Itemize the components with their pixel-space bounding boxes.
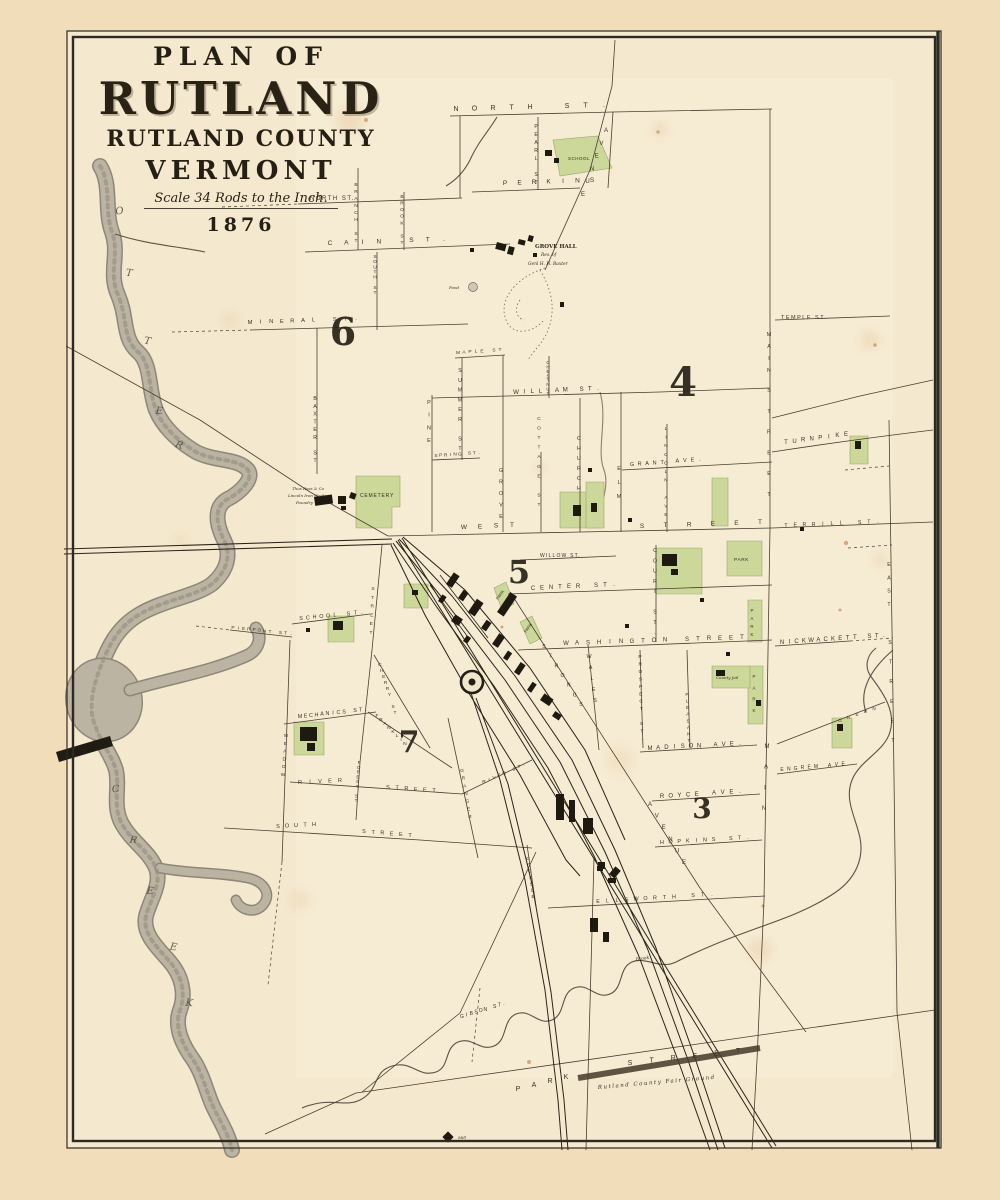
street-label-pierpont-st-char: I (238, 626, 239, 632)
street-label-meadow-char: E (284, 741, 287, 747)
street-label-street-char: E (692, 1053, 697, 1060)
street-label-mechanics-st-char: . (365, 707, 367, 713)
street-label-park-char: A (532, 1082, 537, 1089)
street-label-perkins-char: I (562, 178, 564, 185)
street-label-ellsworth-st-char: R (653, 896, 657, 902)
district-number-6: 6 (330, 309, 356, 354)
street-label-maple-st-char: M (456, 350, 460, 356)
street-label-nickwackett-st-char: C (824, 637, 829, 643)
street-label-brook-st-char: S (400, 233, 403, 239)
street-label-avenue-char: V (655, 814, 659, 820)
street-label-street-char: R (767, 430, 771, 436)
place-label-pond: Pond (448, 285, 460, 290)
street-label-court-st-char: C (653, 548, 657, 554)
street-label-mechanics-st-char: S (353, 708, 357, 714)
street-label-street-char: S (362, 829, 366, 835)
street-label-prospect-st-char: P (639, 684, 642, 690)
street-label-river-st-char: I (488, 777, 489, 783)
street-label-lincoln-ave-char: N (664, 478, 668, 484)
street-label-hopkins-st-char: S (729, 836, 733, 842)
street-label-elm-char: E (617, 466, 621, 472)
district-number-7: 7 (399, 725, 420, 760)
street-label-cherry-st-char: E (382, 674, 385, 680)
street-label-meadow-char: D (282, 756, 286, 762)
street-label-gibson-st-char: I (466, 1013, 467, 1019)
street-label-south-char: S (276, 824, 280, 830)
street-label-washington-street-char: E (718, 636, 722, 642)
street-label-street-char: E (711, 521, 716, 528)
street-label-willow-st: WILLOW ST. (540, 553, 581, 559)
street-label-turnpike-char: N (810, 437, 814, 443)
street-label-hopkins-st-char: I (696, 838, 698, 844)
place-label-county-jail: County Jail (716, 675, 739, 680)
street-label-street-char: E (767, 450, 771, 456)
street-label-north-st-char: T (509, 105, 514, 112)
street-label-pleasant-char: E (686, 705, 689, 711)
street-label-madison-ave-char: E (730, 741, 734, 747)
street-label-pierpont-st-char: E (242, 626, 245, 632)
street-label-pleasant-char: P (685, 692, 688, 698)
street-label-street-char: T (664, 522, 668, 529)
street-label-prospect-st-char: R (638, 661, 642, 667)
street-label-pierpont-st-char: O (257, 628, 261, 634)
street-label-gibson-st-char: T (498, 1002, 501, 1008)
street-label-baxter-st-char: R (313, 435, 317, 441)
street-label-center-st-char: C (531, 586, 536, 592)
street-label-nickwackett-st-char: N (780, 640, 784, 646)
street-label-nickwackett-st-char: A (816, 638, 820, 644)
street-label-gibson-st-char: O (479, 1008, 483, 1014)
street-label-branch-st-char: H (354, 217, 358, 223)
street-label-spring-st-char: . (478, 451, 479, 456)
street-label-nickwackett-st-char: W (808, 638, 814, 644)
street-label-mineral-st-char: A (301, 318, 305, 324)
street-label-temple-st: TEMPLE ST. (781, 315, 827, 321)
street-label-grove-char: E (499, 514, 503, 520)
street-label-church-char: R (577, 466, 581, 472)
street-label-wales-char: L (591, 676, 594, 682)
street-label-washington-street-char: N (619, 639, 623, 645)
street-label-spring-st-char: T (473, 450, 476, 456)
street-label-mechanics-st-char: C (309, 713, 313, 719)
street-label-cain-st-char: C (328, 240, 333, 247)
street-label-grove-char: R (499, 480, 503, 486)
street-label-lincoln-ave-char: L (665, 426, 668, 432)
place-label-genl-h-h-baxter: Genl H. H. Baxter (528, 262, 569, 267)
otter-creek-letter: O (115, 206, 125, 218)
street-label-court-st-char: U (653, 569, 657, 575)
street-label-washington-street-char: H (597, 640, 601, 646)
place-label-mill: Mill (457, 1135, 467, 1140)
street-label-park-char: K (564, 1074, 569, 1081)
street-label-turnpike-char: T (784, 440, 788, 446)
street-label-washington-street-char: T (641, 638, 645, 644)
street-label-royce-ave-char: O (668, 793, 673, 799)
place-label-foundry: Foundry (295, 500, 314, 505)
street-label-wales-char: E (592, 687, 596, 693)
street-label-terrill-st-char: R (812, 522, 816, 528)
street-label-center-st-char: E (540, 586, 544, 592)
street-label-center-st-char: R (576, 584, 581, 590)
street-label-grant-ave-char: V (683, 458, 687, 464)
street-label-park-char: K (751, 632, 754, 637)
street-label-royce-ave-char: C (686, 792, 691, 798)
street-label-south-st-char: S (373, 285, 376, 291)
street-label-cottage-st-char: S (537, 492, 540, 498)
street-label-nickwackett-st-char: K (831, 637, 835, 643)
street-label-terrill-st-char: E (793, 523, 797, 529)
street-label-ellsworth-st-char: L (616, 898, 619, 904)
street-label-madison-ave-char: A (713, 742, 717, 748)
street-label-turnpike-char: K (835, 433, 839, 439)
street-label-south-st-char: T (374, 269, 377, 275)
street-label-lincoln-ave-char: E (664, 512, 667, 518)
street-label-perkins-char: S (590, 177, 595, 184)
street-label-terrill-st-char: R (803, 522, 807, 528)
street-label-park-char: R (750, 624, 753, 629)
street-label-cherry-st-char: R (386, 686, 390, 692)
street-label-green-char: G (838, 718, 842, 723)
place-label-school: SCHOOL (568, 156, 590, 161)
street-label-north-st-char: S (565, 103, 570, 110)
street-label-street-char: S (640, 523, 645, 530)
street-label-north-st-char: T (583, 103, 588, 110)
street-label-brook-st-char: B (400, 194, 403, 200)
street-label-center-st-char: E (567, 584, 571, 590)
street-label-terrill-st-char: I (822, 521, 823, 527)
street-label-meadow-char: W (281, 772, 286, 778)
place-label-cemetery: CEMETERY (360, 493, 394, 499)
street-label-perkins-char: E (517, 180, 522, 187)
street-label-nickwackett-st-char: T (853, 635, 857, 641)
street-label-grant-ave-char: A (675, 459, 679, 465)
street-label-south-st-char: S (373, 254, 376, 260)
street-label-engrem-ave-char: G (794, 766, 798, 772)
street-label-william-st-char: W (513, 389, 519, 396)
street-label-brook-st-char: O (400, 214, 404, 220)
street-label-pleasant-char: S (687, 718, 690, 724)
street-label-prospect-st-char: . (641, 737, 642, 742)
roundhouse (461, 671, 483, 693)
street-label-branch-st-char: C (354, 210, 358, 216)
street-label-green-char: E (864, 709, 867, 714)
street-label-river-st-char: R (502, 771, 506, 777)
street-label-pearl-st-char: L (535, 156, 538, 162)
street-label-royce-ave-char: R (660, 794, 665, 800)
street-label-court-st-char: O (653, 558, 657, 564)
street-label-church-char: H (577, 446, 581, 452)
street-label-south-char: U (294, 823, 298, 829)
street-label-street-char: E (370, 621, 373, 627)
street-label-branch-st-char: S (354, 231, 357, 237)
street-label-maple-st-char: P (468, 349, 471, 355)
street-label-center-st-char: N (549, 585, 553, 591)
street-label-grant-ave-char: N (653, 460, 657, 466)
street-label-park-char: R (547, 1078, 552, 1085)
street-label-forest-st-char: T (356, 784, 359, 789)
street-label-meadow-char: M (284, 733, 288, 739)
street-label-cottage-st-char: O (537, 426, 541, 432)
street-label-mineral-st-char: R (290, 318, 294, 324)
street-label-green-char: E (855, 712, 858, 717)
street-label-school-st-char: O (319, 614, 323, 620)
street-label-avenue-char: A (648, 802, 652, 808)
street-label-cain-st-char: . (443, 236, 445, 243)
street-label-strongs-char: G (573, 692, 577, 698)
street-label-spring-st-char: P (439, 453, 442, 459)
street-label-ellsworth-st-char: S (691, 893, 695, 899)
street-label-perkins-char: N (575, 178, 580, 185)
street-label-mechanics-st-char: N (326, 711, 330, 717)
street-label-lincoln-ave-char: O (664, 460, 668, 466)
street-label-nickwackett-st-char: C (794, 639, 799, 645)
street-label-south-st-char: O (373, 259, 377, 265)
street-label-granger-char: N (464, 791, 468, 797)
street-label-grant-ave-char: G (630, 462, 634, 468)
street-label-pierpont-st-char: . (290, 632, 291, 637)
street-label-prospect-st-char: S (640, 721, 643, 727)
street-label-park-char: P (751, 608, 754, 613)
street-label-pearl-st-char: R (534, 148, 538, 154)
street-label-washington-street-char: S (586, 640, 590, 646)
street-label-pierpont-st-char: T (284, 630, 287, 636)
street-label-park-char: P (753, 674, 756, 679)
street-label-street-char: T (371, 595, 374, 601)
street-label-street-char: R (380, 831, 384, 837)
courthouse-building (662, 554, 677, 566)
street-label-east-char: A (887, 575, 891, 581)
street-label-madison-ave-char: O (689, 744, 694, 750)
street-label-cain-st-char: N (377, 238, 382, 245)
street-label-gibson-st-char: N (484, 1007, 488, 1013)
street-label-school-st-char: S (347, 611, 351, 617)
street-label-summer-st-char: E (458, 407, 462, 413)
street-label-avenue-char: E (662, 825, 666, 831)
street-label-nickwackett-st-char: T (846, 636, 850, 642)
street-label-pleasant-char: N (687, 731, 691, 737)
street-label-east-char: S (887, 589, 891, 595)
street-label-branch-st-char: B (354, 182, 357, 188)
street-label-pine-char: P (427, 400, 431, 406)
street-label-grove-char: O (499, 491, 503, 497)
street-label-maple-st-char: E (480, 348, 483, 354)
street-label-church-char: C (577, 476, 581, 482)
street-label-forest-st-char: T (355, 798, 358, 803)
street-label-park-char: P (516, 1086, 521, 1093)
street-label-elm-char: M (617, 494, 622, 500)
street-label-street-char: R (671, 1055, 676, 1062)
street-label-avenue-char: N (590, 166, 594, 172)
street-label-royce-ave-char: V (721, 790, 725, 796)
street-label-washington-street-char: O (652, 638, 657, 644)
street-label-street-char: S (371, 586, 374, 592)
street-label-william-st-char: I (523, 389, 525, 396)
street-label-south-st-char: H (373, 275, 377, 281)
street-label-prospect-st-char: C (639, 699, 643, 705)
street-label-north-st: NORTH ST. (310, 196, 355, 202)
street-label-ellsworth-st-char: L (606, 898, 609, 904)
district-number-5: 5 (508, 553, 530, 591)
street-label-strongs-char: N (567, 683, 571, 689)
street-label-granger-char: G (465, 799, 469, 805)
place-label-res-of: Res. of (540, 253, 558, 258)
street-label-william-st-char: T (588, 385, 592, 392)
street-label-granger-char: R (468, 814, 472, 820)
street-label-brook-st-char: T (401, 240, 404, 246)
street-label-street-char: E (399, 832, 403, 838)
street-label-street-char: E (767, 471, 771, 477)
street-label-church-char: H (577, 486, 581, 492)
street-label-north-st-char: O (472, 106, 478, 113)
street-label-maple-st-char: T (499, 347, 502, 353)
street-label-main-char: A (767, 344, 771, 350)
street-label-street-char: E (891, 718, 895, 724)
street-label-strongs-char: O (560, 673, 564, 679)
street-label-pierpont-st-char: P (252, 627, 255, 633)
street-label-avenue-char: E (595, 154, 599, 160)
street-label-west-char: S (494, 523, 499, 530)
street-label-river-st-char: R (482, 779, 486, 785)
street-label-prospect-st-char: O (638, 669, 642, 675)
street-label-spring-st-char: N (453, 452, 457, 458)
street-label-north-st-char: N (453, 106, 458, 113)
place-label-grove-hall: GROVE HALL (535, 244, 577, 250)
street-label-cherry-st-char: R (384, 680, 388, 686)
street-label-lincoln-ave-char: C (664, 452, 668, 458)
street-label-pierpont-st-char: P (231, 625, 234, 631)
antique-map-page: PLAN OF RUTLAND RUTLAND COUNTY VERMONT S… (0, 0, 1000, 1200)
street-label-west-char: W (461, 524, 468, 531)
street-label-terrill-st-char: S (858, 520, 862, 526)
street-label-william-st-char: M (563, 387, 568, 394)
street-label-school-st-char: C (306, 615, 310, 621)
street-label-court-st-char: . (654, 630, 655, 636)
street-label-engrem-ave-char: R (801, 765, 805, 771)
otter-creek-letter: K (184, 998, 194, 1010)
street-label-north-st-char: R (490, 105, 495, 112)
street-label-washington-street-char: T (740, 635, 744, 641)
street-label-hopkins-st-char: K (686, 839, 690, 845)
street-label-west-char: T (510, 522, 514, 529)
street-label-street-char: E (734, 520, 739, 527)
street-label-summer-st-char: U (458, 378, 462, 384)
street-label-engrem-ave-char: . (849, 761, 850, 767)
street-label-pierpont-st-char: S (279, 630, 282, 636)
street-label-strongs-char: R (554, 663, 558, 669)
street-label-prospect-st-char: T (640, 729, 643, 735)
street-label-summer-st-char: S (458, 368, 462, 374)
street-label-pierpont-st-char: T (268, 629, 271, 635)
street-label-nickwackett-st-char: E (838, 636, 842, 642)
street-label-main-char: A (764, 765, 768, 771)
street-label-ellsworth-st-char: . (711, 892, 713, 898)
street-label-river-char: V (318, 779, 322, 785)
street-label-meadow-char: O (282, 764, 286, 770)
street-label-crossle-char: L (531, 888, 534, 893)
street-label-wales-char: A (589, 665, 593, 671)
street-label-park-char: R (752, 697, 755, 702)
street-label-cherry-st-char: T (394, 710, 397, 716)
district-number-4: 4 (669, 359, 697, 406)
street-label-maple-st-char: S (492, 347, 495, 353)
street-label-gibson-st-char: . (503, 1001, 504, 1007)
street-label-river-char: E (328, 779, 332, 785)
street-label-gibson-st-char: G (460, 1014, 464, 1020)
street-label-school-st-char: O (326, 613, 330, 619)
street-label-washington-street-char: R (707, 636, 712, 642)
street-label-madison-ave-char: S (681, 744, 685, 750)
street-label-avenue-char: A (604, 128, 608, 134)
street-label-terrill-st-char: . (877, 519, 878, 525)
street-label-william-st-char: L (539, 388, 543, 395)
street-label-center-st-char: S (594, 583, 598, 589)
map-canvas: NORTHST.NORTH ST.PEARLSTPERKINSAVENUEBRA… (0, 0, 1000, 1200)
street-label-hopkins-st-char: S (712, 837, 716, 843)
street-label-william-st-char: S (580, 386, 584, 393)
street-label-spring-st-char: I (450, 452, 451, 458)
street-label-mechanics-st-char: H (315, 712, 319, 718)
street-label-royce-ave-char: A (712, 791, 716, 797)
street-label-pierpont-st-char: R (247, 627, 251, 633)
street-label-spring-st-char: S (434, 453, 437, 459)
place-label-lincoln-iron-works: Lincoln Iron Works (287, 493, 327, 498)
street-label-street-char: E (890, 699, 894, 705)
street-label-ellsworth-st-char: H (672, 894, 676, 900)
street-label-school-st-char: H (313, 615, 317, 621)
street-label-south-st-char: U (373, 264, 377, 270)
street-label-madison-ave-char: M (648, 746, 653, 752)
street-label-street-char: S (888, 640, 892, 646)
street-label-washington-street-char: N (663, 638, 667, 644)
street-label-street-char: T (370, 630, 373, 636)
place-label-park: PARK (734, 557, 749, 563)
street-label-spring-st-char: S (468, 451, 471, 457)
street-label-chestnut-char: T (547, 391, 550, 396)
street-label-royce-ave-char: Y (677, 793, 681, 799)
street-label-cottage-st-char: E (537, 473, 540, 479)
street-label-main-char: M (765, 744, 770, 750)
street-label-grant-ave-char: A (645, 461, 649, 467)
street-label-park-char: A (751, 616, 754, 621)
street-label-south-char: O (285, 824, 290, 830)
street-label-prospect-st-char: P (638, 654, 641, 660)
street-label-ellsworth-st-char: S (625, 897, 629, 903)
street-label-mechanics-st-char: I (332, 711, 334, 717)
street-label-main-char: N (762, 806, 766, 812)
street-label-baxter-st-char: T (313, 419, 316, 425)
street-label-washington-street-char: A (575, 641, 579, 647)
street-label-summer-st-char: M (458, 397, 462, 403)
street-label-washington-street-char: G (630, 639, 635, 645)
street-label-lincoln-ave-char: N (664, 443, 668, 449)
street-label-crossle-char: S (530, 881, 533, 886)
street-label-grant-ave-char: E (691, 458, 695, 464)
street-label-turnpike-char: P (818, 435, 822, 441)
street-label-avenue-char: E (581, 192, 585, 198)
street-label-avenue-char: U (585, 179, 589, 185)
street-label-mechanics-st-char: M (298, 714, 303, 720)
street-label-cherry-st-char: C (378, 662, 382, 668)
street-label-summer-st-char: R (458, 417, 462, 423)
street-label-branch-st-char: N (354, 203, 358, 209)
street-label-madison-ave-char: A (656, 746, 660, 752)
street-label-wales-char: S (593, 698, 597, 704)
street-label-granger-char: R (462, 776, 466, 782)
street-label-east-char: E (887, 562, 891, 568)
street-label-lincoln-ave-char: I (665, 435, 666, 441)
street-label-elm-char: L (618, 480, 621, 486)
street-label-william-st-char: . (597, 385, 599, 392)
